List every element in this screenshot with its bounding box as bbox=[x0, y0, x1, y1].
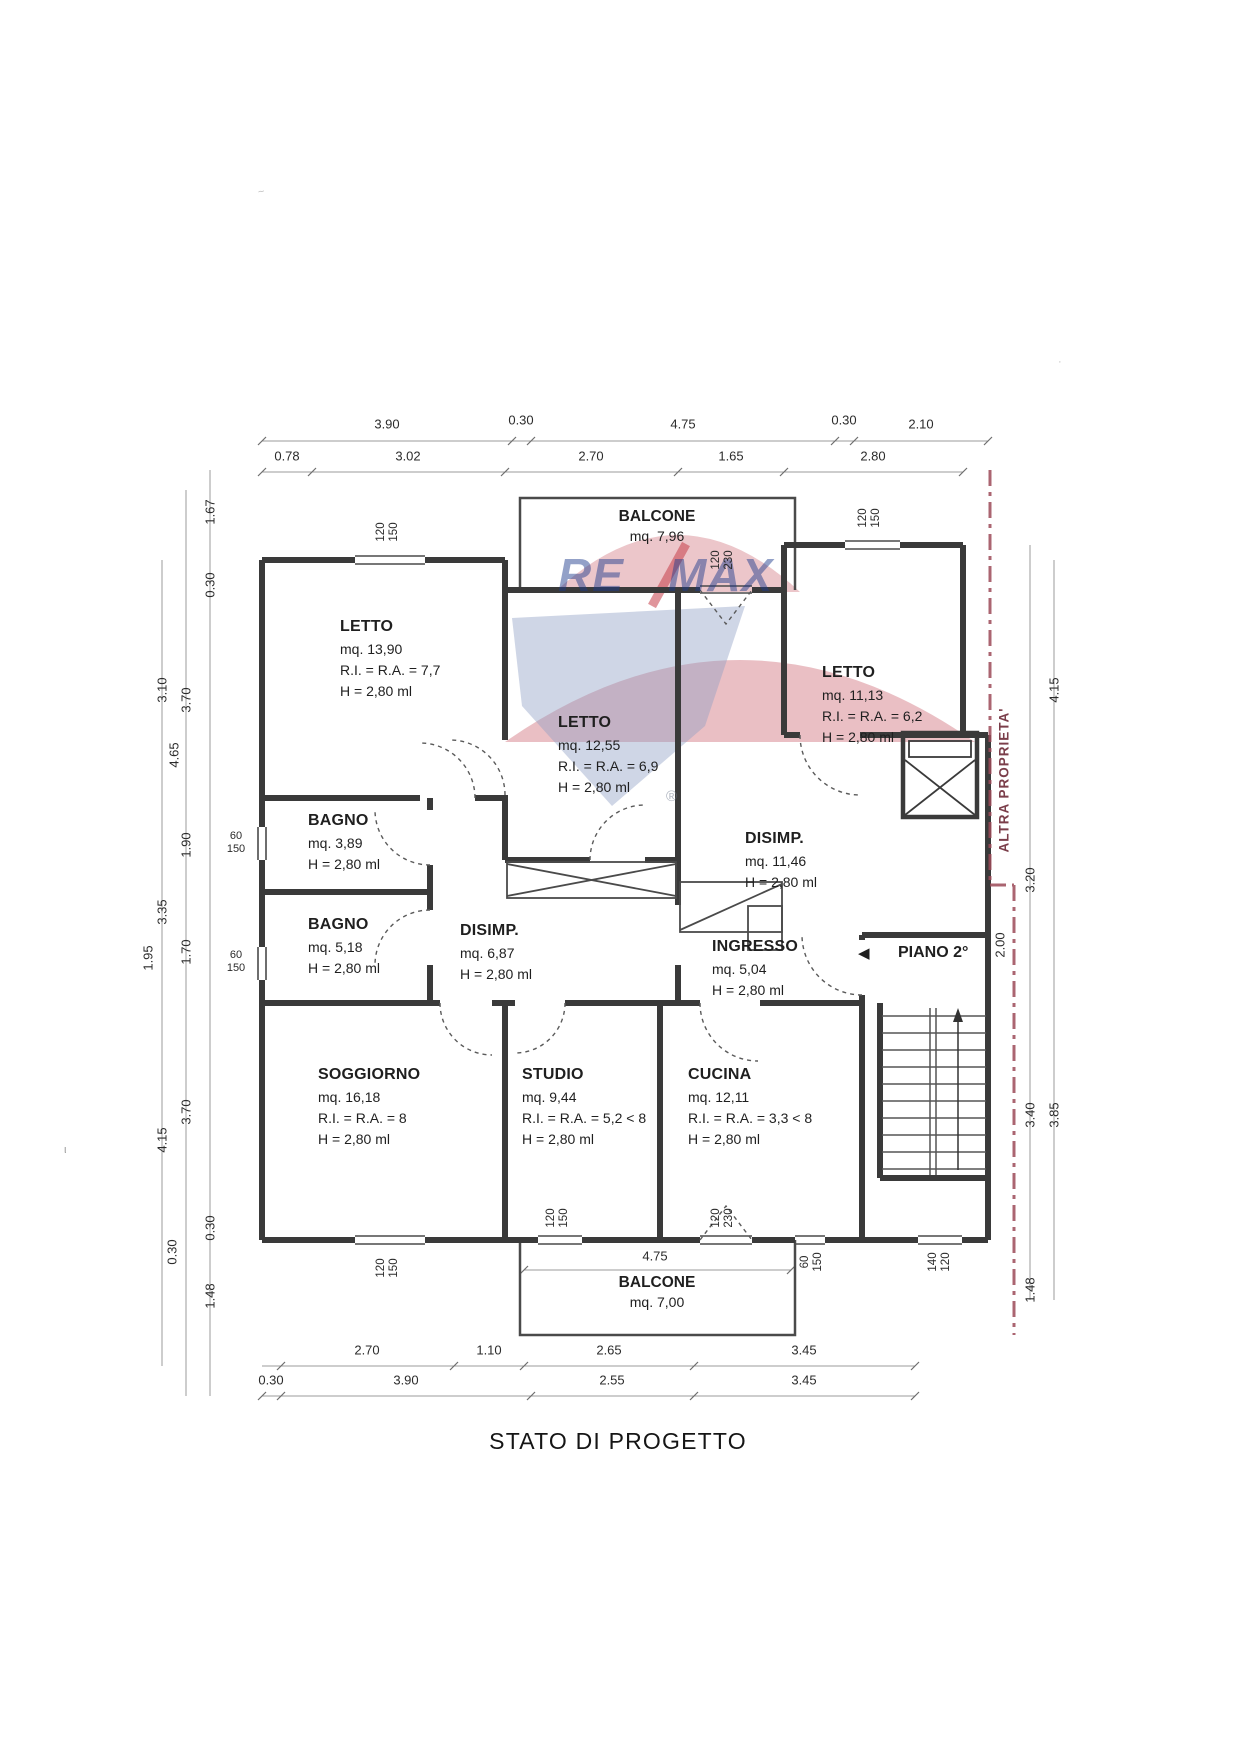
page-title: STATO DI PROGETTO bbox=[489, 1428, 747, 1455]
room-height: H = 2,80 ml bbox=[688, 1129, 812, 1150]
room-height: H = 2,80 ml bbox=[558, 777, 658, 798]
dim-left: 4.65 bbox=[167, 742, 182, 767]
room-height: H = 2,80 ml bbox=[460, 964, 532, 985]
room-name: LETTO bbox=[822, 664, 922, 682]
room-name: STUDIO bbox=[522, 1066, 646, 1084]
dim-bottom: 2.55 bbox=[599, 1373, 624, 1388]
room-label-bagno-1: BAGNO mq. 3,89 H = 2,80 ml bbox=[308, 812, 380, 875]
dim-right: 2.00 bbox=[993, 932, 1008, 957]
dim-left: 0.30 bbox=[203, 572, 218, 597]
room-name: BAGNO bbox=[308, 916, 380, 934]
room-area: mq. 5,18 bbox=[308, 937, 380, 958]
dim-top: 1.65 bbox=[718, 449, 743, 464]
room-name: DISIMP. bbox=[460, 922, 532, 940]
window-size-label: 60150 bbox=[227, 949, 245, 975]
room-area: mq. 12,55 bbox=[558, 735, 658, 756]
room-name: BAGNO bbox=[308, 812, 380, 830]
window-size-label: 120230 bbox=[710, 1208, 736, 1227]
room-height: H = 2,80 ml bbox=[712, 980, 798, 1001]
dim-top: 2.80 bbox=[860, 449, 885, 464]
room-label-ingresso: INGRESSO mq. 5,04 H = 2,80 ml bbox=[712, 938, 798, 1001]
dim-top: 3.02 bbox=[395, 449, 420, 464]
dim-left: 0.30 bbox=[203, 1215, 218, 1240]
watermark-registered-icon: ® bbox=[666, 788, 677, 805]
dim-right: 3.85 bbox=[1047, 1102, 1062, 1127]
room-ratio: R.I. = R.A. = 3,3 < 8 bbox=[688, 1108, 812, 1129]
dim-balcone-inner: 4.75 bbox=[642, 1249, 667, 1264]
dim-left: 1.48 bbox=[203, 1283, 218, 1308]
floor-label-piano-2: PIANO 2° bbox=[898, 944, 968, 962]
room-area: mq. 7,00 bbox=[619, 1292, 696, 1313]
dim-left: 0.30 bbox=[165, 1239, 180, 1264]
room-label-studio: STUDIO mq. 9,44 R.I. = R.A. = 5,2 < 8 H … bbox=[522, 1066, 646, 1150]
room-label-cucina: CUCINA mq. 12,11 R.I. = R.A. = 3,3 < 8 H… bbox=[688, 1066, 812, 1150]
dim-left: 1.90 bbox=[179, 832, 194, 857]
room-area: mq. 11,13 bbox=[822, 685, 922, 706]
room-label-letto-3: LETTO mq. 11,13 R.I. = R.A. = 6,2 H = 2,… bbox=[822, 664, 922, 748]
room-ratio: R.I. = R.A. = 8 bbox=[318, 1108, 420, 1129]
room-area: mq. 11,46 bbox=[745, 851, 817, 872]
room-label-disimp-1: DISIMP. mq. 6,87 H = 2,80 ml bbox=[460, 922, 532, 985]
boundary-label-altra-proprieta: ALTRA PROPRIETA' bbox=[997, 708, 1012, 853]
dim-left: 3.70 bbox=[179, 687, 194, 712]
watermark-brand-re: RE bbox=[558, 548, 624, 602]
room-label-soggiorno: SOGGIORNO mq. 16,18 R.I. = R.A. = 8 H = … bbox=[318, 1066, 420, 1150]
window-size-label: 120150 bbox=[375, 1258, 401, 1277]
dim-left: 4.15 bbox=[155, 1127, 170, 1152]
dim-top: 2.70 bbox=[578, 449, 603, 464]
window-size-label: 120150 bbox=[545, 1208, 571, 1227]
room-ratio: R.I. = R.A. = 6,2 bbox=[822, 706, 922, 727]
dim-top: 0.30 bbox=[508, 413, 533, 428]
dim-bottom: 3.90 bbox=[393, 1373, 418, 1388]
window-size-label: 120230 bbox=[710, 550, 736, 569]
dim-left: 1.67 bbox=[203, 499, 218, 524]
window-size-label: 120150 bbox=[857, 508, 883, 527]
room-area: mq. 13,90 bbox=[340, 639, 440, 660]
scan-noise-mark: ι bbox=[64, 1144, 66, 1156]
room-name: CUCINA bbox=[688, 1066, 812, 1084]
dim-left: 1.95 bbox=[141, 945, 156, 970]
room-label-balcone-top: BALCONE mq. 7,96 bbox=[619, 508, 696, 547]
window-size-label: 140120 bbox=[927, 1252, 953, 1271]
dim-bottom: 2.65 bbox=[596, 1343, 621, 1358]
dim-top: 4.75 bbox=[670, 417, 695, 432]
room-name: DISIMP. bbox=[745, 830, 817, 848]
dim-top: 0.78 bbox=[274, 449, 299, 464]
room-name: SOGGIORNO bbox=[318, 1066, 420, 1084]
room-name: LETTO bbox=[558, 714, 658, 732]
dim-bottom: 2.70 bbox=[354, 1343, 379, 1358]
room-label-letto-1: LETTO mq. 13,90 R.I. = R.A. = 7,7 H = 2,… bbox=[340, 618, 440, 702]
dim-right: 4.15 bbox=[1047, 677, 1062, 702]
dim-left: 3.70 bbox=[179, 1099, 194, 1124]
stairs bbox=[882, 1008, 986, 1175]
room-area: mq. 3,89 bbox=[308, 833, 380, 854]
room-area: mq. 5,04 bbox=[712, 959, 798, 980]
room-height: H = 2,80 ml bbox=[308, 958, 380, 979]
room-name: LETTO bbox=[340, 618, 440, 636]
dim-right: 1.48 bbox=[1023, 1277, 1038, 1302]
room-name: BALCONE bbox=[619, 1274, 696, 1292]
dim-bottom: 1.10 bbox=[476, 1343, 501, 1358]
room-height: H = 2,80 ml bbox=[340, 681, 440, 702]
dim-bottom: 3.45 bbox=[791, 1343, 816, 1358]
stairs-up-arrow-icon bbox=[953, 1008, 963, 1022]
room-height: H = 2,80 ml bbox=[745, 872, 817, 893]
window-size-label: 60150 bbox=[799, 1252, 825, 1271]
room-name: INGRESSO bbox=[712, 938, 798, 956]
room-height: H = 2,80 ml bbox=[522, 1129, 646, 1150]
scanned-floor-plan-page: RE MAX ® 3.90 0.30 4.75 0.30 2.10 0.78 3… bbox=[0, 0, 1240, 1754]
room-height: H = 2,80 ml bbox=[822, 727, 922, 748]
room-area: mq. 6,87 bbox=[460, 943, 532, 964]
closets bbox=[507, 862, 782, 950]
window-size-label: 120150 bbox=[375, 522, 401, 541]
dim-left: 3.35 bbox=[155, 899, 170, 924]
room-area: mq. 12,11 bbox=[688, 1087, 812, 1108]
dim-right: 3.20 bbox=[1023, 867, 1038, 892]
room-label-bagno-2: BAGNO mq. 5,18 H = 2,80 ml bbox=[308, 916, 380, 979]
scan-noise-mark: · bbox=[1058, 356, 1062, 368]
entrance-direction-arrow-icon: ◀ bbox=[858, 944, 870, 962]
room-ratio: R.I. = R.A. = 7,7 bbox=[340, 660, 440, 681]
dim-left: 1.70 bbox=[179, 939, 194, 964]
room-height: H = 2,80 ml bbox=[308, 854, 380, 875]
property-boundary-line bbox=[990, 470, 1014, 1335]
dim-left: 3.10 bbox=[155, 677, 170, 702]
dim-bottom: 0.30 bbox=[258, 1373, 283, 1388]
room-label-disimp-2: DISIMP. mq. 11,46 H = 2,80 ml bbox=[745, 830, 817, 893]
room-name: BALCONE bbox=[619, 508, 696, 526]
room-ratio: R.I. = R.A. = 5,2 < 8 bbox=[522, 1108, 646, 1129]
room-area: mq. 16,18 bbox=[318, 1087, 420, 1108]
dim-bottom: 3.45 bbox=[791, 1373, 816, 1388]
window-size-label: 60150 bbox=[227, 830, 245, 856]
floor-plan-drawing bbox=[0, 0, 1240, 1754]
room-label-balcone-bottom: BALCONE mq. 7,00 bbox=[619, 1274, 696, 1313]
room-label-letto-2: LETTO mq. 12,55 R.I. = R.A. = 6,9 H = 2,… bbox=[558, 714, 658, 798]
dim-top: 3.90 bbox=[374, 417, 399, 432]
dim-top: 2.10 bbox=[908, 417, 933, 432]
room-area: mq. 9,44 bbox=[522, 1087, 646, 1108]
room-height: H = 2,80 ml bbox=[318, 1129, 420, 1150]
room-area: mq. 7,96 bbox=[619, 526, 696, 547]
dim-top: 0.30 bbox=[831, 413, 856, 428]
room-ratio: R.I. = R.A. = 6,9 bbox=[558, 756, 658, 777]
dim-right: 3.40 bbox=[1023, 1102, 1038, 1127]
